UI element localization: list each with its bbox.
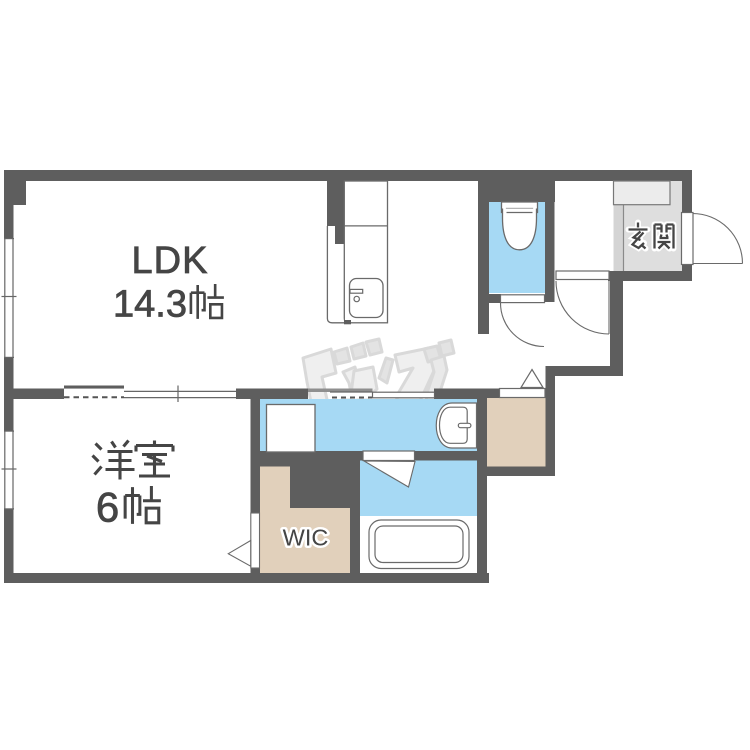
svg-text:14.3: 14.3: [113, 283, 187, 325]
svg-text:WIC: WIC: [283, 525, 329, 551]
svg-text:LDK: LDK: [132, 240, 209, 282]
svg-text:6: 6: [96, 484, 119, 531]
